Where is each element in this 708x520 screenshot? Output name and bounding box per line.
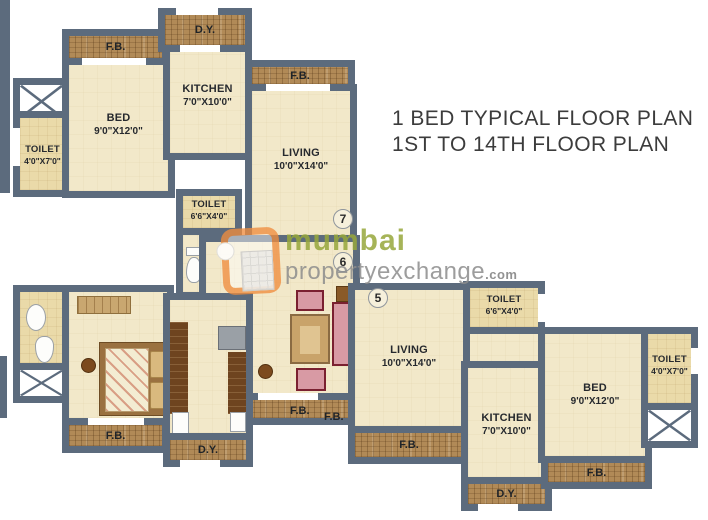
room-label-living-top: LIVING 10'0"X14'0" bbox=[252, 147, 350, 173]
elevator-cross-icon bbox=[20, 370, 63, 396]
balcony-label: F.B. bbox=[252, 67, 348, 84]
room-bed-bottom-right: BED 9'0"X12'0" bbox=[538, 327, 652, 463]
table-top-icon bbox=[300, 326, 320, 354]
room-dims: 10'0"X14'0" bbox=[274, 161, 328, 174]
balcony-label: D.Y. bbox=[468, 484, 545, 504]
room-name: KITCHEN bbox=[182, 83, 232, 97]
balcony-label: F.B. bbox=[355, 433, 463, 457]
room-dims: 9'0"X12'0" bbox=[94, 126, 143, 139]
floor-plan-canvas: TOILET 4'0"X7'0" F.B. BED 9'0"X12'0" D.Y… bbox=[0, 0, 708, 520]
room-label-bed-bottom-right: BED 9'0"X12'0" bbox=[545, 382, 645, 408]
window-toilet-top-left bbox=[13, 128, 20, 166]
window-toilet-top-bottom-right bbox=[538, 294, 545, 322]
wardrobe-icon bbox=[77, 296, 131, 314]
window-dy-top bbox=[176, 8, 218, 15]
unit-number-badge-7: 7 bbox=[333, 209, 353, 229]
title-line-2: 1ST TO 14TH FLOOR PLAN bbox=[392, 132, 668, 158]
room-label-toilet-right-bottom-right: TOILET 4'0"X7'0" bbox=[648, 354, 691, 377]
room-name: LIVING bbox=[390, 344, 428, 358]
balcony-fb-living-bottom-right: F.B. bbox=[348, 426, 470, 464]
room-bed-top: BED 9'0"X12'0" bbox=[62, 58, 175, 198]
unit-number: 5 bbox=[375, 291, 382, 305]
brand-tld: .com bbox=[485, 267, 517, 282]
window-bed-top bbox=[82, 58, 146, 65]
exterior-wall-left-top bbox=[0, 0, 10, 193]
kitchen-counter bbox=[228, 352, 246, 414]
unit-number-badge-5: 5 bbox=[368, 288, 388, 308]
window-toilet-right-bottom-right bbox=[691, 348, 698, 374]
balcony-label: D.Y. bbox=[165, 15, 245, 45]
room-living-bottom-right: LIVING 10'0"X14'0" bbox=[348, 283, 470, 433]
room-bed-bottom-left bbox=[62, 285, 174, 425]
coffee-table-icon bbox=[290, 314, 330, 364]
room-dims: 7'0"X10'0" bbox=[482, 426, 531, 439]
window-living-top bbox=[266, 84, 330, 91]
fridge-icon bbox=[218, 326, 246, 350]
room-name: KITCHEN bbox=[481, 412, 531, 426]
room-label-kitchen-bottom-right: KITCHEN 7'0"X10'0" bbox=[468, 412, 545, 438]
bed-icon bbox=[99, 342, 168, 416]
room-dims: 6'6"X4'0" bbox=[191, 211, 228, 222]
room-kitchen-top: KITCHEN 7'0"X10'0" bbox=[163, 45, 252, 160]
room-dims: 9'0"X12'0" bbox=[571, 396, 620, 409]
elevator-shaft-bottom-right bbox=[641, 403, 698, 448]
room-dims: 10'0"X14'0" bbox=[382, 358, 436, 371]
armchair-icon bbox=[296, 290, 324, 311]
title-line-1: 1 BED TYPICAL FLOOR PLAN bbox=[392, 106, 668, 132]
washing-machine-icon bbox=[172, 412, 189, 434]
window-fb-bed-bottom-left bbox=[88, 418, 144, 425]
room-label-kitchen-top: KITCHEN 7'0"X10'0" bbox=[170, 83, 245, 109]
room-label-bed-top: BED 9'0"X12'0" bbox=[69, 112, 168, 138]
room-name: TOILET bbox=[25, 144, 60, 156]
room-name: BED bbox=[583, 382, 607, 396]
plant-icon bbox=[258, 364, 273, 379]
window-hall bbox=[258, 393, 318, 400]
room-name: TOILET bbox=[192, 199, 227, 211]
window-dy-bottom-right bbox=[478, 504, 518, 511]
room-dims: 6'6"X4'0" bbox=[486, 306, 523, 317]
wc-icon bbox=[35, 336, 54, 363]
room-toilet-right-bottom-right: TOILET 4'0"X7'0" bbox=[641, 327, 698, 410]
plant-icon bbox=[81, 358, 96, 373]
balcony-label: F.B. bbox=[324, 411, 344, 423]
room-name: TOILET bbox=[652, 354, 687, 366]
unit-number-badge-6: 6 bbox=[333, 252, 353, 272]
room-dims: 4'0"X7'0" bbox=[24, 156, 61, 167]
washbasin-icon bbox=[26, 304, 46, 331]
room-dims: 7'0"X10'0" bbox=[183, 97, 232, 110]
sink-icon bbox=[230, 412, 246, 432]
room-name: LIVING bbox=[282, 147, 320, 161]
armchair-icon bbox=[296, 368, 326, 391]
room-toilet-top-bottom-right: TOILET 6'6"X4'0" bbox=[463, 281, 545, 334]
unit-number: 7 bbox=[340, 212, 347, 226]
room-label-living-bottom-right: LIVING 10'0"X14'0" bbox=[355, 344, 463, 370]
balcony-label: F.B. bbox=[290, 405, 310, 417]
exterior-wall-left-bottom bbox=[0, 356, 7, 418]
balcony-label: F.B. bbox=[69, 36, 162, 58]
room-kitchen-bottom-left bbox=[163, 293, 253, 440]
balcony-fb-bed-bottom-right: F.B. bbox=[541, 456, 652, 489]
window-kitchen-top bbox=[180, 45, 220, 52]
room-label-toilet-top-bottom-right: TOILET 6'6"X4'0" bbox=[470, 294, 538, 317]
page-title: 1 BED TYPICAL FLOOR PLAN 1ST TO 14TH FLO… bbox=[392, 106, 668, 158]
elevator-cross-icon bbox=[648, 410, 691, 441]
balcony-label: F.B. bbox=[69, 425, 162, 446]
room-label-toilet-mid: TOILET 6'6"X4'0" bbox=[183, 199, 235, 222]
room-name: TOILET bbox=[487, 294, 522, 306]
room-name: BED bbox=[107, 112, 131, 126]
room-dims: 4'0"X7'0" bbox=[651, 366, 688, 377]
kitchen-counter bbox=[170, 322, 188, 414]
unit-number: 6 bbox=[340, 255, 347, 269]
window-dy-bottom-left bbox=[180, 460, 220, 467]
balcony-label: F.B. bbox=[548, 463, 645, 482]
room-label-toilet-top-left: TOILET 4'0"X7'0" bbox=[20, 144, 65, 167]
balcony-label: D.Y. bbox=[170, 440, 246, 460]
mattress-icon bbox=[105, 348, 149, 412]
